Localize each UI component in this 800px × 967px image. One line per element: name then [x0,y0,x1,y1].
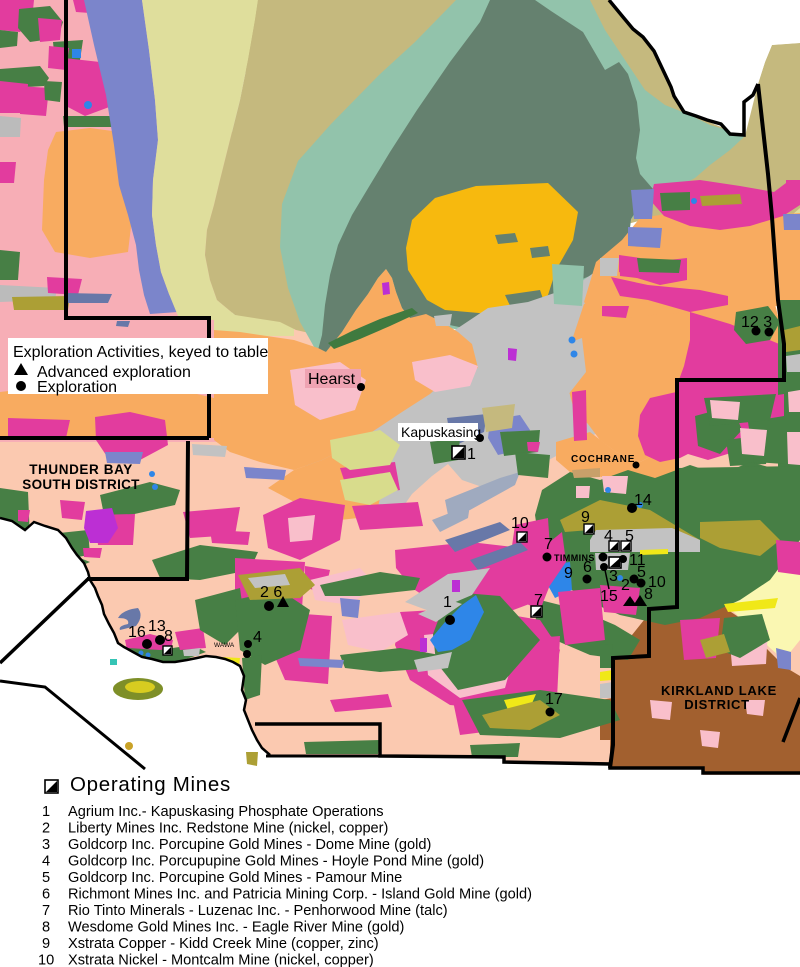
svg-text:Kapuskasing: Kapuskasing [401,424,481,440]
svg-text:4: 4 [253,629,262,646]
svg-text:Richmont Mines Inc. and Patric: Richmont Mines Inc. and Patricia Mining … [68,887,532,903]
svg-text:DISTRICT: DISTRICT [684,697,750,712]
svg-text:Operating Mines: Operating Mines [70,773,231,796]
svg-text:5: 5 [42,870,50,886]
svg-text:THUNDER BAY: THUNDER BAY [29,462,133,477]
svg-text:9: 9 [42,936,50,952]
svg-text:4: 4 [42,854,50,870]
svg-text:7: 7 [42,903,50,919]
svg-text:8: 8 [42,920,50,936]
svg-text:Rio Tinto Minerals - Luzenac I: Rio Tinto Minerals - Luzenac Inc. - Penh… [68,903,448,919]
svg-text:8: 8 [164,628,173,645]
svg-text:Exploration Activities, keyed: Exploration Activities, keyed to table [13,344,268,361]
svg-text:1: 1 [467,446,476,463]
svg-text:Goldcorp Inc. Porcupine Gold M: Goldcorp Inc. Porcupine Gold Mines - Pam… [68,870,402,886]
svg-text:Hearst: Hearst [308,371,356,388]
svg-text:6: 6 [583,559,592,576]
svg-text:7: 7 [544,536,553,553]
svg-text:COCHRANE: COCHRANE [571,454,635,465]
svg-text:17: 17 [545,691,563,708]
svg-text:Liberty Mines Inc. Redstone Mi: Liberty Mines Inc. Redstone Mine (nickel… [68,821,388,837]
svg-text:Xstrata Nickel - Montcalm Mine: Xstrata Nickel - Montcalm Mine (nickel, … [68,953,374,967]
svg-text:15: 15 [600,588,618,605]
svg-text:Xstrata Copper - Kidd Creek Mi: Xstrata Copper - Kidd Creek Mine (copper… [68,936,379,952]
svg-text:6: 6 [42,887,50,903]
svg-text:3: 3 [42,837,50,853]
svg-text:1: 1 [443,594,452,611]
svg-text:WAWA: WAWA [214,642,235,649]
svg-text:10: 10 [38,953,54,967]
svg-text:1: 1 [42,804,50,820]
svg-text:16: 16 [128,624,146,641]
svg-text:Agrium Inc.- Kapuskasing Phosp: Agrium Inc.- Kapuskasing Phosphate Opera… [68,804,384,820]
svg-text:Wesdome Gold Mines Inc. - Eagl: Wesdome Gold Mines Inc. - Eagle River Mi… [68,920,404,936]
svg-text:3: 3 [609,568,618,585]
svg-text:Exploration: Exploration [37,379,117,396]
svg-text:KIRKLAND LAKE: KIRKLAND LAKE [661,683,777,698]
svg-text:SOUTH DISTRICT: SOUTH DISTRICT [22,477,140,492]
svg-text:2 6: 2 6 [260,584,282,601]
svg-text:9: 9 [564,565,573,582]
svg-text:8: 8 [644,586,653,603]
svg-text:10: 10 [511,515,529,532]
svg-text:Goldcorp Inc. Porcupine Gold M: Goldcorp Inc. Porcupine Gold Mines - Dom… [68,837,431,853]
svg-text:2: 2 [621,577,630,594]
svg-text:Goldcorp Inc. Porcupupine Gold: Goldcorp Inc. Porcupupine Gold Mines - H… [68,854,484,870]
svg-text:2: 2 [42,821,50,837]
